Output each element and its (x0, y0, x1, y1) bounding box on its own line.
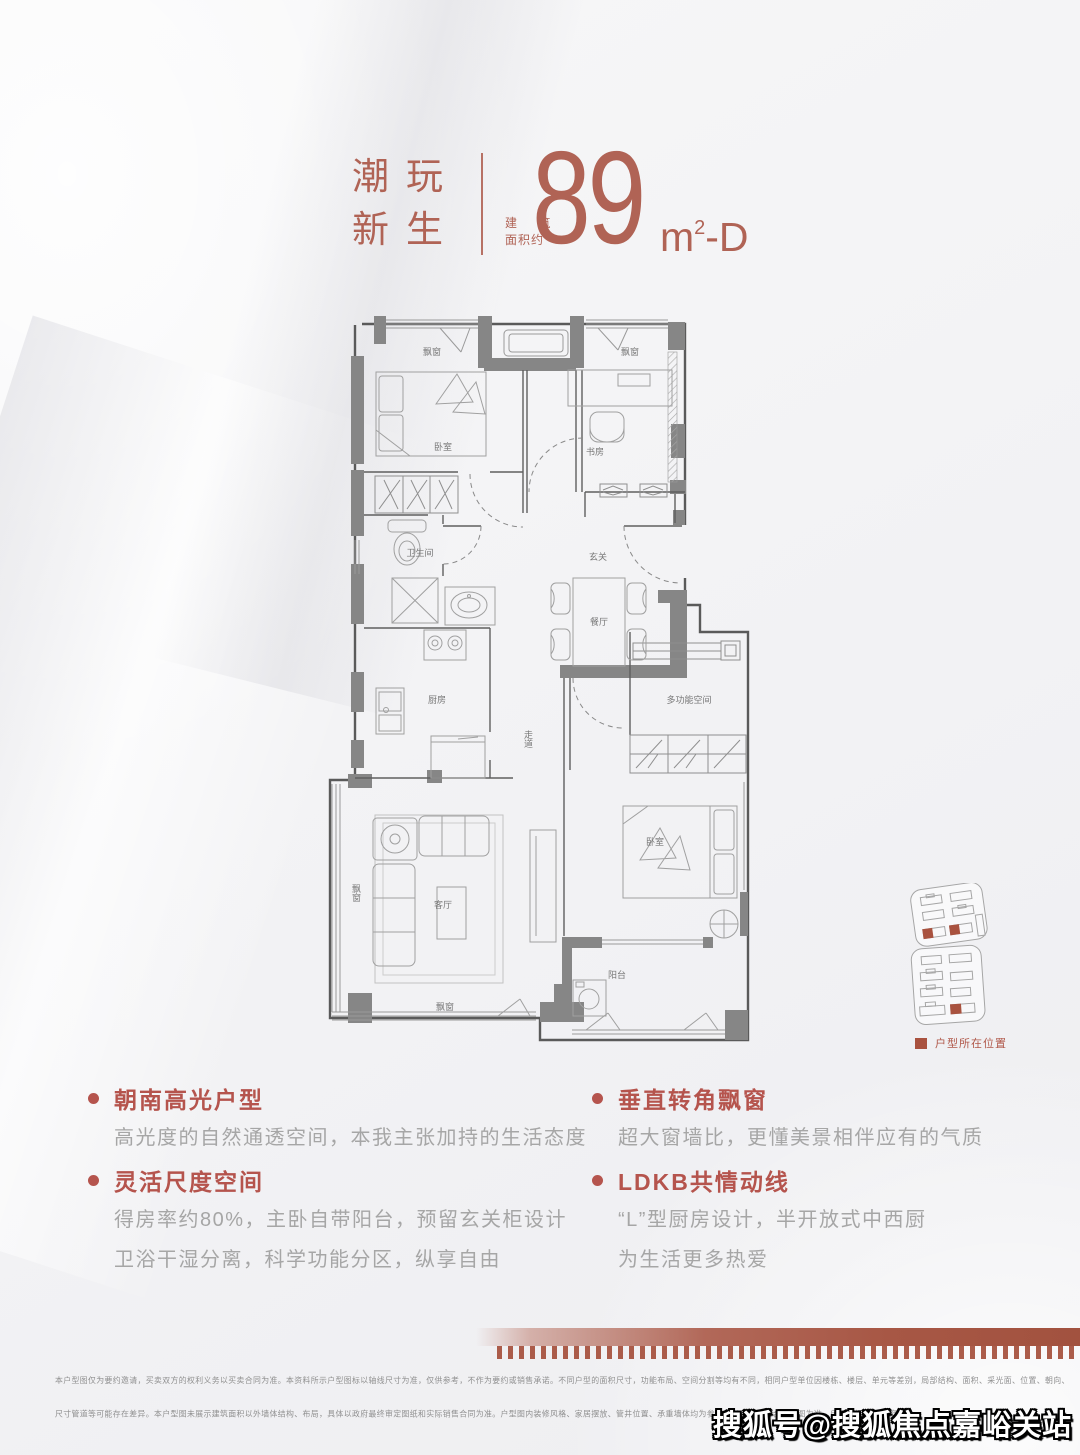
feature-title-text: 灵活尺度空间 (114, 1163, 264, 1197)
closets (375, 476, 746, 773)
bullet-icon (592, 1093, 603, 1104)
room-label-multi: 多功能空间 (666, 694, 711, 705)
page-title: 潮玩 新生 (352, 150, 460, 256)
area-unit: m2-D (660, 214, 749, 261)
interior-walls (355, 370, 685, 936)
room-label-balcony: 阳台 (608, 969, 626, 980)
room-label-bay-window: 飘窗 (621, 346, 639, 357)
room-label-bathroom: 卫生间 (406, 547, 433, 558)
building-2 (911, 945, 986, 1026)
feature-title: 灵活尺度空间 (88, 1160, 568, 1200)
features-left: 朝南高光户型 高光度的自然通透空间，本我主张加持的生活态度 灵活尺度空间 得房率… (88, 1078, 568, 1282)
room-label-study: 书房 (586, 446, 604, 457)
room-label-bay-window: 飘窗 (436, 1001, 454, 1012)
feature-title: LDKB共情动线 (592, 1160, 1052, 1200)
feature-title: 垂直转角飘窗 (592, 1078, 1052, 1118)
feature-item: 灵活尺度空间 得房率约80%，主卧自带阳台，预留玄关柜设计 卫浴干湿分离，科学功… (88, 1160, 568, 1280)
feature-text: 得房率约80%，主卧自带阳台，预留玄关柜设计 (88, 1200, 568, 1240)
title-line-2: 新生 (352, 203, 460, 256)
unit-locator: 户型所在位置 (893, 883, 1018, 1051)
building-1 (909, 883, 988, 948)
room-label-bay-window: 飘窗 (351, 884, 361, 903)
decorative-gradient-bar (476, 1328, 1080, 1346)
decorative-tick-bar (497, 1346, 1080, 1359)
locator-legend: 户型所在位置 (893, 1035, 1018, 1051)
poster-page: 潮玩 新生 建 筑 面积约 89 m2-D (0, 0, 1080, 1455)
feature-title-text: LDKB共情动线 (618, 1163, 790, 1197)
ac-platform (504, 330, 568, 356)
feature-text: 卫浴干湿分离，科学功能分区，纵享自由 (88, 1240, 568, 1280)
disclaimer-line-1: 本户型图仅为要约邀请，买卖双方的权利义务以买卖合同为准。本资料所示户型图标以轴线… (55, 1364, 1060, 1398)
feature-text: 为生活更多热爱 (592, 1240, 1052, 1280)
floor-plan: 飘窗 飘窗 卧室 书房 卫生间 玄关 餐厅 厨房 多功能空间 走道 客厅 卧室 … (318, 312, 770, 1052)
feature-title-text: 垂直转角飘窗 (618, 1081, 768, 1115)
room-label-bedroom2: 卧室 (646, 836, 664, 847)
watermark: 搜狐号@搜狐焦点嘉峪关站 (713, 1402, 1072, 1444)
room-label-entry: 玄关 (589, 551, 607, 562)
bullet-icon (592, 1175, 603, 1186)
room-label-kitchen: 厨房 (428, 694, 446, 705)
room-label-corridor: 走道 (523, 730, 533, 749)
unit-suffix: -D (705, 214, 748, 260)
room-label-dining: 餐厅 (590, 616, 608, 627)
feature-title: 朝南高光户型 (88, 1078, 568, 1118)
room-labels: 飘窗 飘窗 卧室 书房 卫生间 玄关 餐厅 厨房 多功能空间 走道 客厅 卧室 … (351, 346, 712, 1012)
feature-item: 朝南高光户型 高光度的自然通透空间，本我主张加持的生活态度 (88, 1078, 568, 1158)
site-plan (893, 883, 1018, 1029)
title-line-1: 潮玩 (352, 150, 460, 203)
title-divider (481, 153, 483, 255)
feature-item: 垂直转角飘窗 超大窗墙比，更懂美景相伴应有的气质 (592, 1078, 1052, 1158)
outer-walls (330, 324, 748, 1040)
wall-piers (348, 316, 748, 1040)
feature-title-text: 朝南高光户型 (114, 1081, 264, 1115)
room-label-bedroom: 卧室 (434, 441, 452, 452)
features-right: 垂直转角飘窗 超大窗墙比，更懂美景相伴应有的气质 LDKB共情动线 “L”型厨房… (592, 1078, 1052, 1282)
feature-text: “L”型厨房设计，半开放式中西厨 (592, 1200, 1052, 1240)
room-label-bay-window: 飘窗 (423, 346, 441, 357)
feature-text: 高光度的自然通透空间，本我主张加持的生活态度 (88, 1118, 568, 1158)
bullet-icon (88, 1093, 99, 1104)
unit-sup: 2 (694, 217, 705, 239)
feature-item: LDKB共情动线 “L”型厨房设计，半开放式中西厨 为生活更多热爱 (592, 1160, 1052, 1280)
legend-swatch (915, 1038, 927, 1049)
room-label-living: 客厅 (434, 899, 452, 910)
unit-m: m (660, 214, 694, 260)
area-value: 89 (532, 132, 643, 264)
feature-text: 超大窗墙比，更懂美景相伴应有的气质 (592, 1118, 1052, 1158)
legend-label: 户型所在位置 (935, 1035, 1007, 1051)
bullet-icon (88, 1175, 99, 1186)
